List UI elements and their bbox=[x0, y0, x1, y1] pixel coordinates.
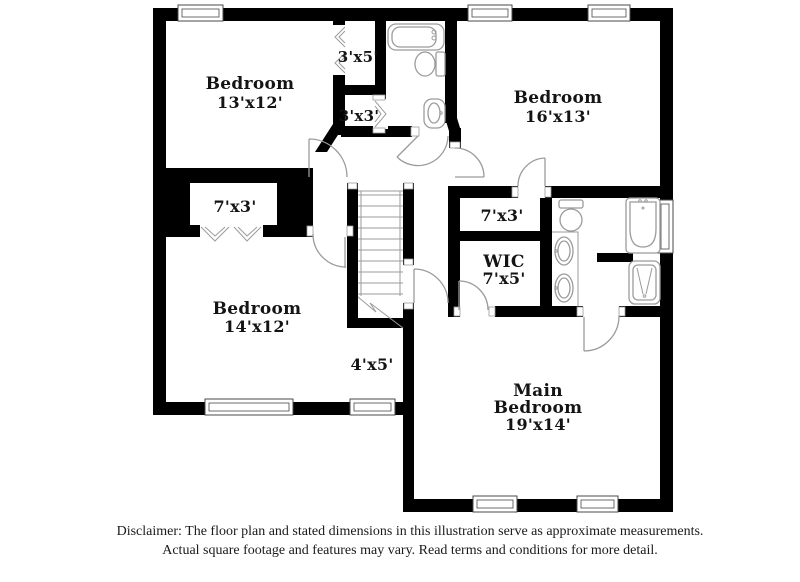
room-label-closet-3x5: 3'x5' bbox=[338, 48, 379, 66]
staircase bbox=[358, 191, 403, 328]
room-label-bedroom-13x12-dims: 13'x12' bbox=[217, 93, 283, 112]
room-label-bedroom-14x12-name: Bedroom bbox=[213, 299, 302, 319]
master-bathroom-fixtures bbox=[552, 198, 660, 306]
room-label-bedroom-14x12-dims: 14'x12' bbox=[224, 317, 290, 336]
window bbox=[577, 496, 618, 512]
disclaimer-line-2: Actual square footage and features may v… bbox=[162, 543, 658, 558]
shower bbox=[629, 261, 660, 304]
disclaimer-line-1: Disclaimer: The floor plan and stated di… bbox=[117, 524, 704, 539]
bathtub bbox=[388, 24, 444, 50]
toilet bbox=[559, 200, 583, 231]
window bbox=[588, 5, 630, 21]
room-label-closet-right-7x3: 7'x3' bbox=[480, 206, 523, 225]
room-label-bedroom-13x12-name: Bedroom bbox=[206, 74, 295, 94]
window bbox=[468, 5, 512, 21]
room-label-main-bedroom-dims: 19'x14' bbox=[505, 415, 571, 434]
window bbox=[473, 496, 517, 512]
room-label-closet-3x3: 3'x3' bbox=[339, 107, 380, 125]
window bbox=[205, 399, 293, 415]
room-label-bedroom-16x13-dims: 16'x13' bbox=[525, 107, 591, 126]
toilet bbox=[415, 52, 445, 76]
floor-plan-page: Bedroom 13'x12' Bedroom 16'x13' 3'x5' 3'… bbox=[0, 0, 800, 582]
window bbox=[350, 399, 395, 415]
room-label-stair-nook-4x5: 4'x5' bbox=[350, 355, 393, 374]
sink bbox=[424, 99, 445, 128]
room-label-wic-dims: 7'x5' bbox=[482, 269, 525, 288]
disclaimer: Disclaimer: The floor plan and stated di… bbox=[117, 524, 704, 558]
window bbox=[178, 5, 223, 21]
floor-plan-drawing: Bedroom 13'x12' Bedroom 16'x13' 3'x5' 3'… bbox=[0, 0, 800, 582]
corner-bathtub bbox=[626, 198, 660, 253]
hall-bathroom-fixtures bbox=[388, 24, 445, 128]
interior-walls bbox=[166, 21, 660, 328]
double-vanity bbox=[552, 232, 578, 306]
room-label-bedroom-16x13-name: Bedroom bbox=[514, 88, 603, 108]
room-label-closet-left-7x3: 7'x3' bbox=[213, 197, 256, 216]
